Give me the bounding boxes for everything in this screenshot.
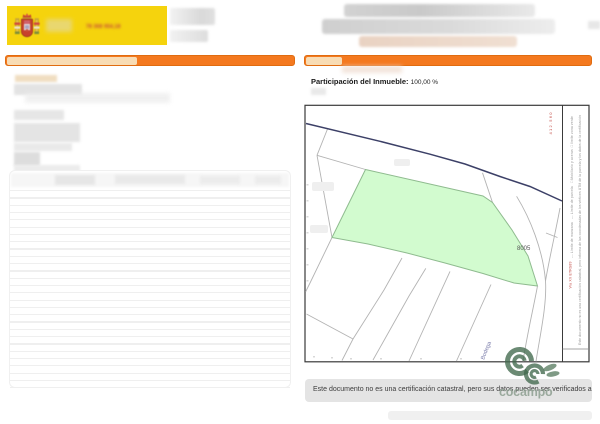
svg-text:--- Límite de manzana --- Lí: --- Límite de manzana --- Límite de parc… <box>570 116 574 258</box>
svg-text:8005: 8005 <box>517 246 531 252</box>
svg-text:412.560: 412.560 <box>548 112 553 135</box>
svg-text:Vía XX ETRS89: Vía XX ETRS89 <box>569 261 573 288</box>
svg-text:Este documento no es una certi: Este documento no es una certificación c… <box>578 115 582 345</box>
